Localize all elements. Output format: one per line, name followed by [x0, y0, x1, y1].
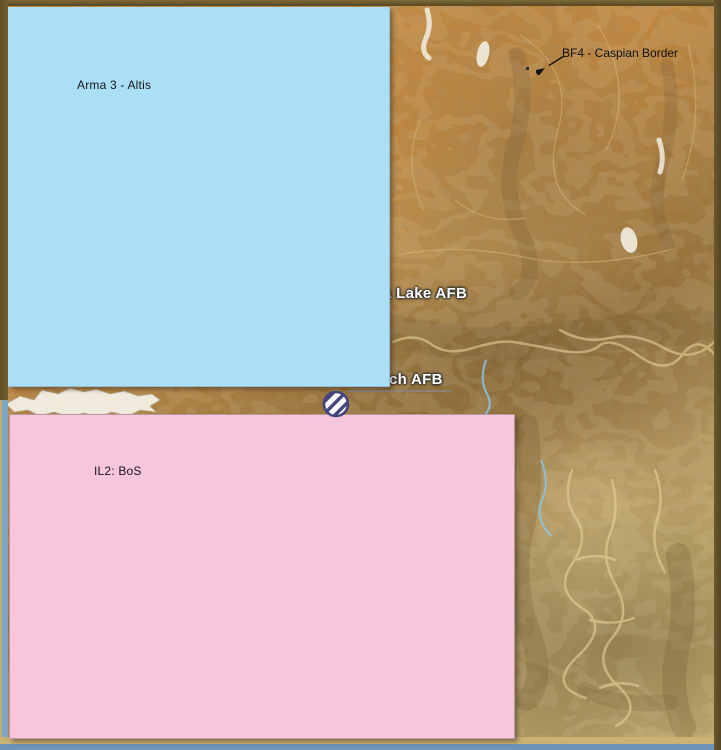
arma3-altis-label: Arma 3 - Altis — [77, 78, 151, 92]
frame-top — [0, 0, 721, 6]
dry-lake-shape — [6, 388, 160, 417]
bf4-arrow-icon — [536, 53, 570, 75]
frame-right — [714, 0, 721, 750]
afb-label-underline — [348, 390, 452, 392]
map-size-comparison: a Lake AFB ch AFB Arma 3 - Altis IL2: Bo… — [0, 0, 721, 750]
il2-bos-area: IL2: BoS — [9, 414, 515, 739]
map-label-afb: ch AFB — [389, 371, 443, 388]
arma3-altis-area: Arma 3 - Altis — [8, 7, 390, 387]
hatched-circle-marker — [321, 389, 351, 419]
frame-bottom-blue — [0, 744, 721, 750]
bf4-target-dot — [526, 67, 529, 70]
bf4-caspian-label: BF4 - Caspian Border — [562, 46, 678, 60]
frame-left-brown — [0, 0, 8, 400]
frame-left-blue — [2, 396, 8, 750]
il2-bos-label: IL2: BoS — [94, 464, 142, 478]
map-label-lake-afb: a Lake AFB — [383, 285, 467, 302]
